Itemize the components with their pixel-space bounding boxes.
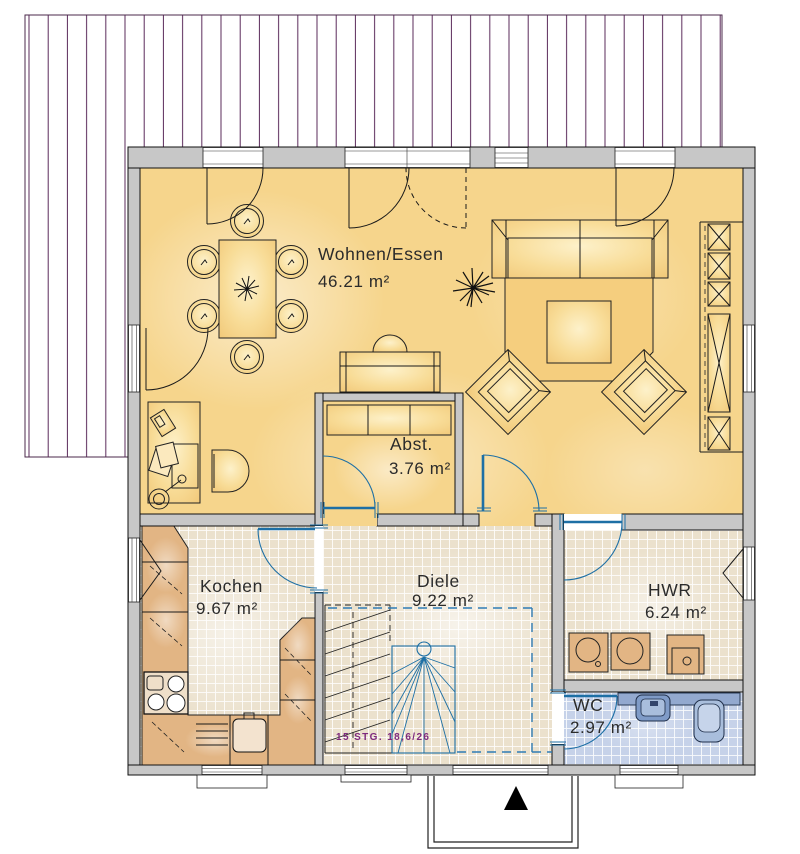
desk-chair — [212, 450, 249, 492]
living-window — [744, 325, 755, 392]
room-area-diele: 9.22 m² — [412, 591, 474, 610]
wc-basin — [636, 695, 670, 721]
washing-machine — [569, 633, 608, 672]
room-label-wc: WC — [573, 695, 603, 715]
storage-shelf — [327, 405, 451, 435]
top-window — [495, 148, 528, 168]
stair-window — [341, 766, 411, 783]
room-label-abst: Abst. — [390, 434, 433, 454]
room-label-kochen: Kochen — [200, 576, 263, 596]
dining-chair — [188, 300, 221, 333]
french-door-opening — [345, 148, 470, 168]
utility-sink — [667, 635, 704, 674]
floor-plan: Wohnen/Essen 46.21 m² Abst. 3.76 m² Koch… — [0, 0, 800, 854]
sofa — [492, 220, 668, 278]
entrance-porch — [428, 776, 578, 848]
dining-chair — [275, 300, 308, 333]
hwr-fixtures — [569, 633, 704, 674]
room-label-wohnen: Wohnen/Essen — [318, 244, 444, 264]
wc-toilet — [694, 700, 724, 742]
terrace-door-opening — [203, 148, 263, 168]
dining-chair — [188, 246, 221, 279]
stair-note: 15 STG. 18,6/26 — [336, 732, 430, 743]
dining-chair — [275, 246, 308, 279]
room-area-wohnen: 46.21 m² — [318, 272, 390, 291]
room-label-diele: Diele — [417, 571, 460, 591]
entrance-opening — [453, 766, 548, 775]
terrace-door-opening — [615, 148, 675, 168]
room-area-wc: 2.97 m² — [570, 718, 632, 737]
left-terrace-door — [129, 325, 140, 392]
dryer — [611, 633, 650, 670]
coffee-table — [547, 301, 611, 363]
room-area-kochen: 9.67 m² — [196, 599, 258, 618]
room-area-hwr: 6.24 m² — [645, 603, 707, 622]
wc-window — [615, 766, 683, 789]
stove — [144, 672, 188, 714]
kitchen-door-opening — [315, 526, 323, 592]
dining-chair — [231, 205, 264, 238]
kitchen-bottom-window — [197, 766, 267, 789]
room-area-abst: 3.76 m² — [389, 459, 451, 478]
wc-door-opening — [552, 692, 564, 744]
dining-chair — [231, 341, 264, 374]
room-label-hwr: HWR — [648, 580, 692, 600]
